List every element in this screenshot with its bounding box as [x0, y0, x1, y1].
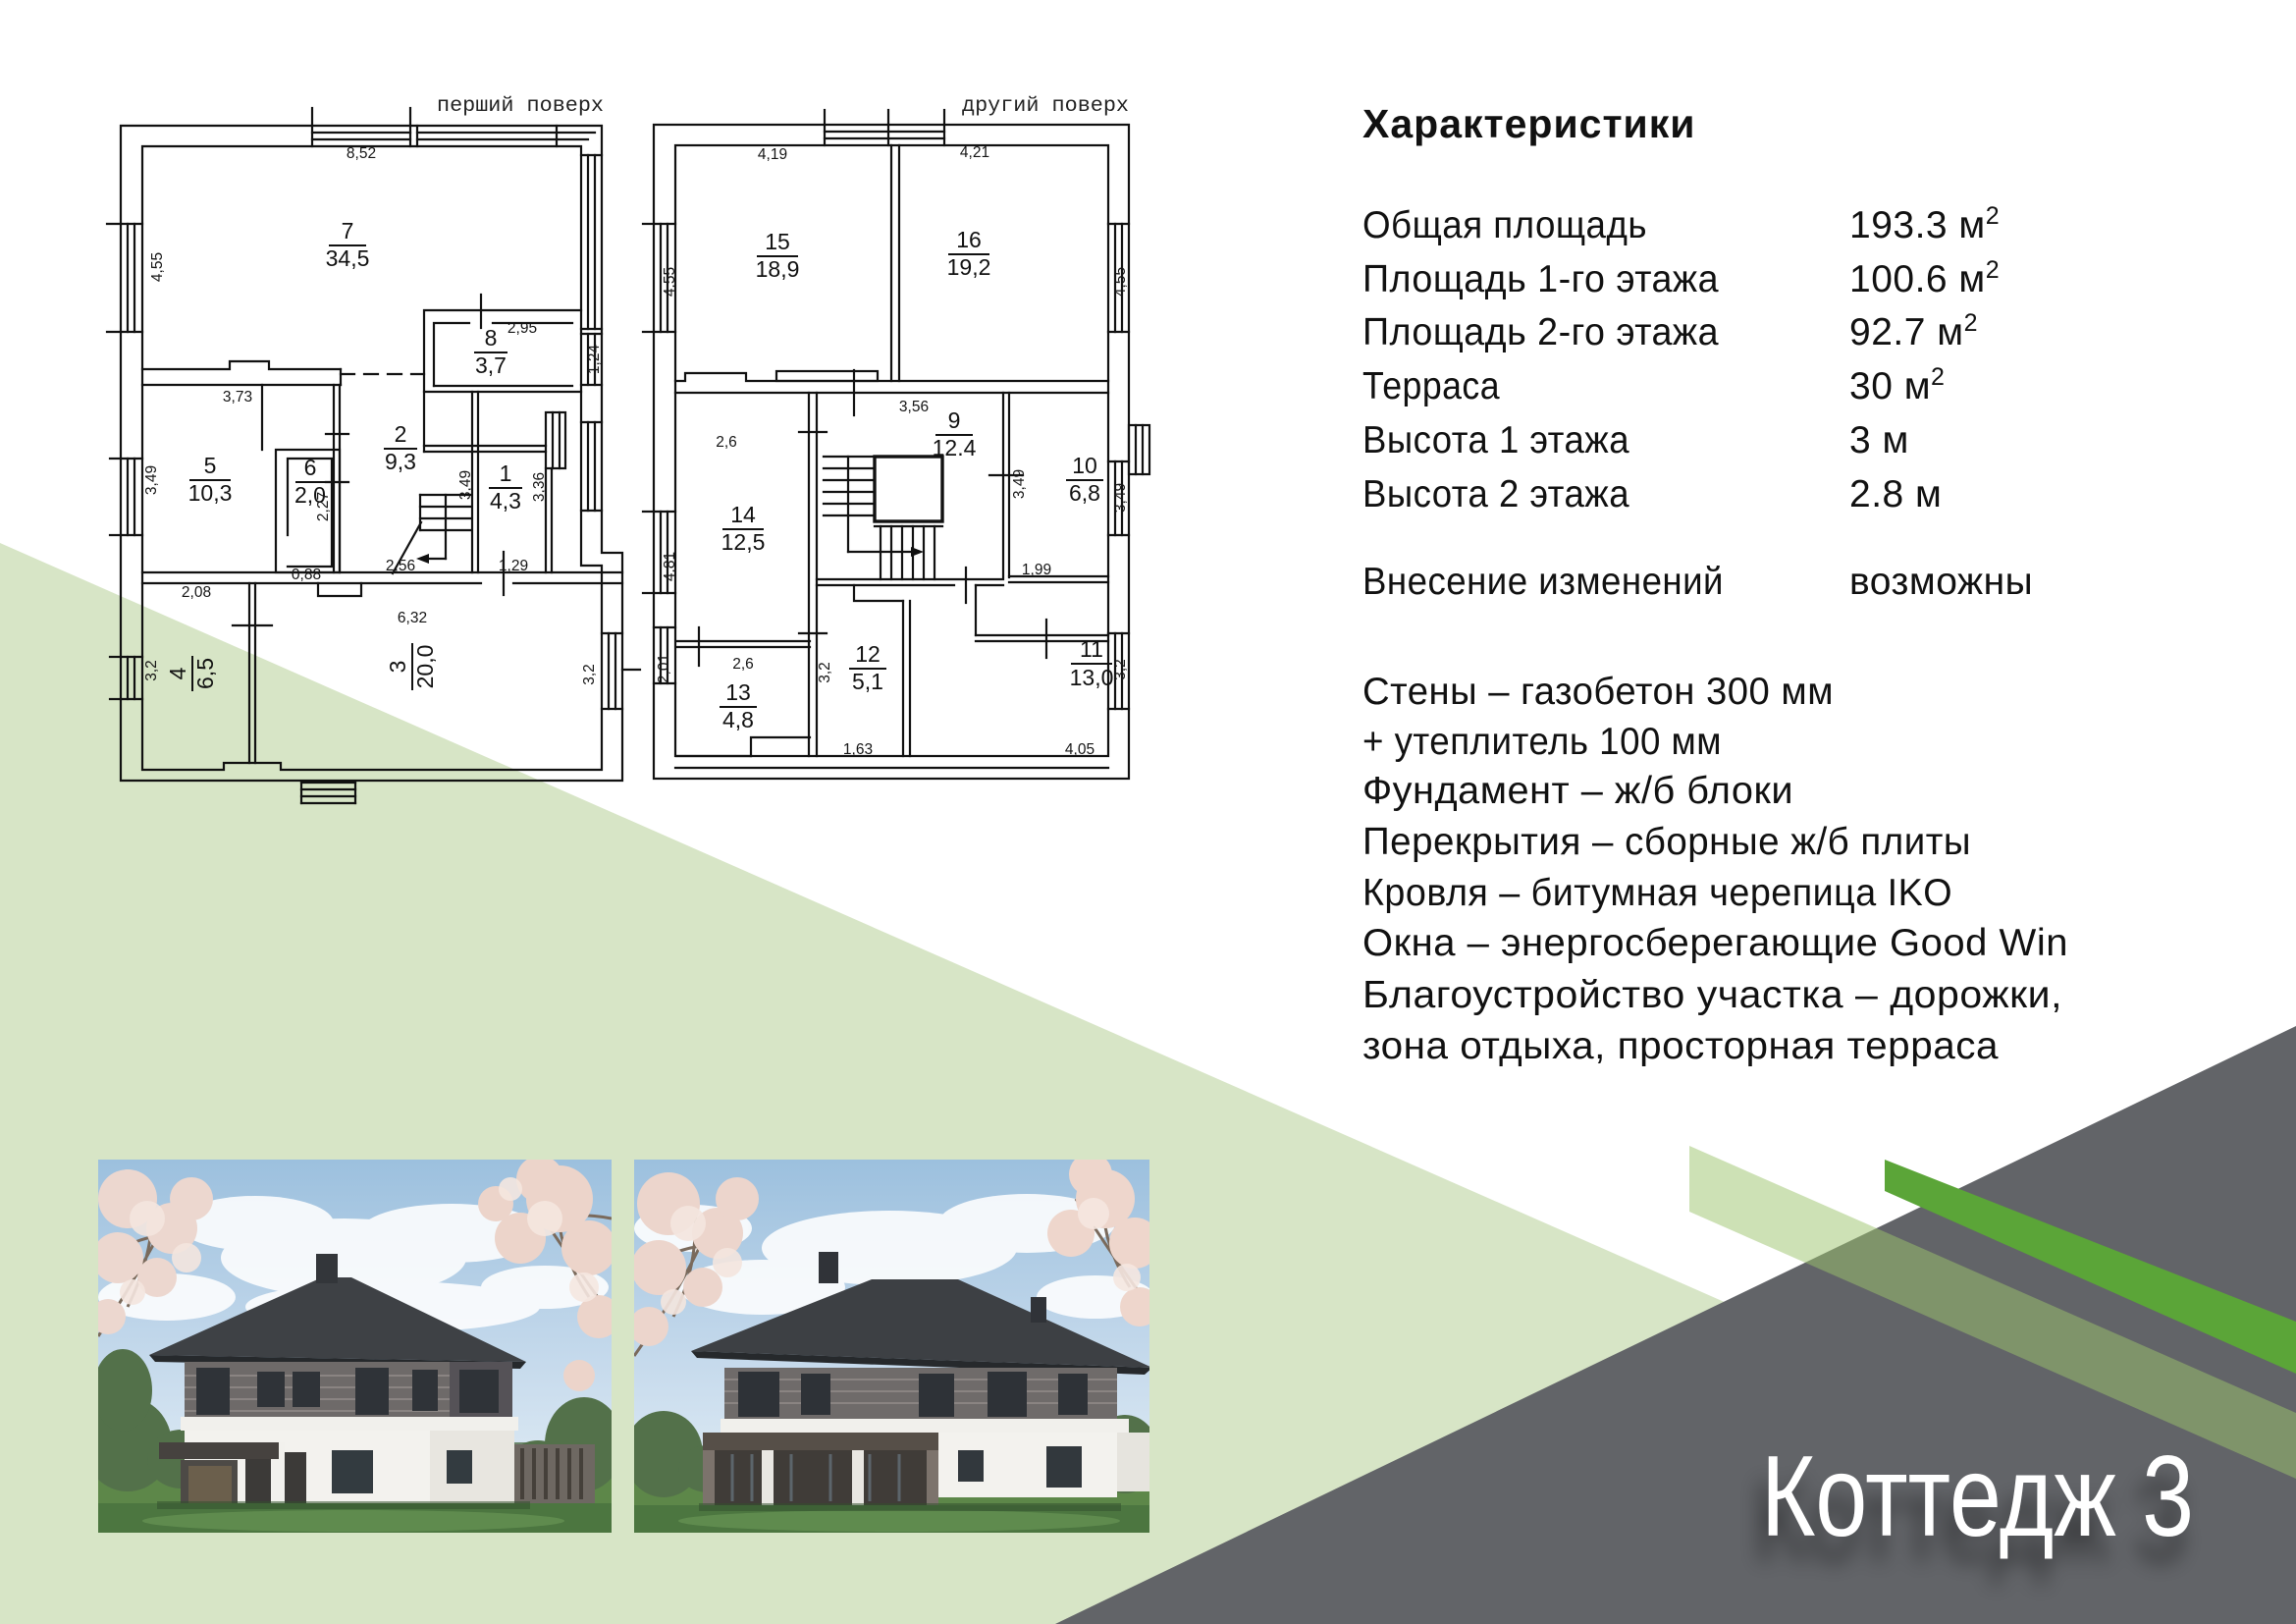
- svg-text:4,55: 4,55: [662, 267, 678, 297]
- svg-text:4,21: 4,21: [960, 144, 989, 161]
- svg-text:19,2: 19,2: [947, 254, 991, 280]
- svg-text:другий поверх: другий поверх: [962, 95, 1129, 118]
- svg-text:1,99: 1,99: [1022, 562, 1051, 578]
- svg-text:Фундамент – ж/б блоки: Фундамент – ж/б блоки: [1362, 770, 1793, 812]
- svg-text:13,0: 13,0: [1070, 665, 1114, 690]
- svg-text:возможны: возможны: [1849, 561, 2033, 603]
- svg-text:6: 6: [304, 455, 317, 480]
- svg-text:Площадь 2-го этажа: Площадь 2-го этажа: [1362, 311, 1719, 353]
- svg-text:Высота 1 этажа: Высота 1 этажа: [1362, 419, 1629, 461]
- svg-text:20,0: 20,0: [412, 645, 438, 689]
- svg-text:4,81: 4,81: [662, 552, 678, 581]
- svg-text:4,19: 4,19: [758, 146, 787, 163]
- svg-text:3,2: 3,2: [1112, 659, 1129, 680]
- svg-text:Кровля – битумная черепица IKO: Кровля – битумная черепица IKO: [1362, 872, 1952, 914]
- svg-text:3,2: 3,2: [581, 664, 598, 685]
- svg-text:3,56: 3,56: [899, 399, 929, 415]
- svg-text:4,05: 4,05: [1065, 741, 1095, 758]
- svg-text:2,08: 2,08: [182, 584, 211, 601]
- svg-text:3,49: 3,49: [143, 465, 160, 495]
- svg-text:Общая площадь: Общая площадь: [1362, 204, 1647, 246]
- svg-text:16: 16: [956, 227, 982, 252]
- svg-text:18,9: 18,9: [756, 256, 800, 282]
- svg-text:2,95: 2,95: [507, 320, 537, 337]
- svg-text:Коттедж 3: Коттедж 3: [1761, 1432, 2194, 1560]
- svg-text:3,7: 3,7: [475, 352, 507, 378]
- svg-text:2: 2: [395, 421, 407, 447]
- svg-text:8,52: 8,52: [347, 145, 376, 162]
- svg-text:Перекрытия – сборные ж/б плиты: Перекрытия – сборные ж/б плиты: [1362, 821, 1971, 863]
- svg-text:1: 1: [500, 460, 512, 486]
- svg-text:2,6: 2,6: [732, 656, 754, 673]
- svg-text:3,2: 3,2: [143, 660, 160, 681]
- svg-text:перший поверх: перший поверх: [437, 95, 604, 118]
- svg-text:2,56: 2,56: [386, 558, 415, 574]
- svg-text:5,1: 5,1: [852, 669, 883, 694]
- svg-text:10,3: 10,3: [188, 480, 233, 506]
- svg-text:4,3: 4,3: [490, 488, 521, 514]
- svg-text:3,73: 3,73: [223, 389, 252, 406]
- svg-text:Стены – газобетон 300 мм: Стены – газобетон 300 мм: [1362, 671, 1834, 713]
- svg-text:11: 11: [1080, 636, 1103, 662]
- svg-text:12: 12: [855, 641, 881, 667]
- svg-text:6,32: 6,32: [398, 610, 427, 626]
- svg-text:30 м2: 30 м2: [1849, 363, 1945, 407]
- svg-text:1,63: 1,63: [843, 741, 873, 758]
- svg-text:3: 3: [385, 661, 410, 674]
- svg-text:2,27: 2,27: [315, 492, 332, 521]
- svg-text:Внесение изменений: Внесение изменений: [1362, 561, 1724, 603]
- svg-text:1,24: 1,24: [586, 345, 603, 375]
- svg-text:12.4: 12.4: [933, 435, 977, 460]
- svg-text:100.6 м2: 100.6 м2: [1849, 256, 2000, 300]
- svg-text:3,49: 3,49: [457, 470, 474, 500]
- svg-text:10: 10: [1072, 453, 1097, 478]
- svg-text:4: 4: [165, 667, 190, 679]
- svg-text:7: 7: [342, 218, 354, 244]
- svg-text:1,29: 1,29: [499, 558, 528, 574]
- svg-text:6,8: 6,8: [1069, 480, 1100, 506]
- svg-text:92.7 м2: 92.7 м2: [1849, 309, 1978, 353]
- svg-text:зона отдыха, просторная террас: зона отдыха, просторная терраса: [1362, 1025, 1999, 1067]
- svg-text:3 м: 3 м: [1849, 419, 1909, 461]
- svg-text:Окна – энергосберегающие Good: Окна – энергосберегающие Good Win: [1362, 922, 2068, 964]
- svg-text:2,6: 2,6: [716, 434, 737, 451]
- svg-text:3,2: 3,2: [817, 662, 833, 683]
- svg-text:+ утеплитель 100 мм: + утеплитель 100 мм: [1362, 721, 1722, 763]
- svg-text:14: 14: [730, 502, 756, 527]
- svg-text:3,49: 3,49: [1011, 469, 1028, 499]
- svg-text:5: 5: [204, 453, 217, 478]
- svg-text:Высота 2 этажа: Высота 2 этажа: [1362, 473, 1629, 515]
- svg-text:13: 13: [725, 679, 751, 705]
- svg-text:8: 8: [485, 325, 498, 351]
- svg-text:193.3 м2: 193.3 м2: [1849, 202, 2000, 246]
- svg-text:Площадь 1-го этажа: Площадь 1-го этажа: [1362, 258, 1719, 300]
- svg-text:4,55: 4,55: [149, 252, 166, 282]
- svg-text:2.8 м: 2.8 м: [1849, 473, 1942, 515]
- svg-text:9,3: 9,3: [385, 449, 416, 474]
- svg-text:6,5: 6,5: [192, 658, 218, 689]
- svg-text:34,5: 34,5: [326, 245, 370, 271]
- svg-text:3,49: 3,49: [1112, 483, 1129, 513]
- svg-text:3,36: 3,36: [531, 472, 548, 502]
- svg-text:2,01: 2,01: [656, 654, 672, 683]
- svg-text:12,5: 12,5: [721, 529, 766, 555]
- svg-text:0,88: 0,88: [292, 567, 321, 583]
- svg-text:9: 9: [948, 407, 961, 433]
- svg-text:4,8: 4,8: [722, 707, 754, 732]
- svg-text:Характеристики: Характеристики: [1362, 101, 1695, 146]
- svg-text:Терраса: Терраса: [1362, 365, 1500, 407]
- svg-text:15: 15: [765, 229, 790, 254]
- svg-text:Благоустройство участка – доро: Благоустройство участка – дорожки,: [1362, 974, 2062, 1016]
- svg-text:4,55: 4,55: [1112, 267, 1129, 297]
